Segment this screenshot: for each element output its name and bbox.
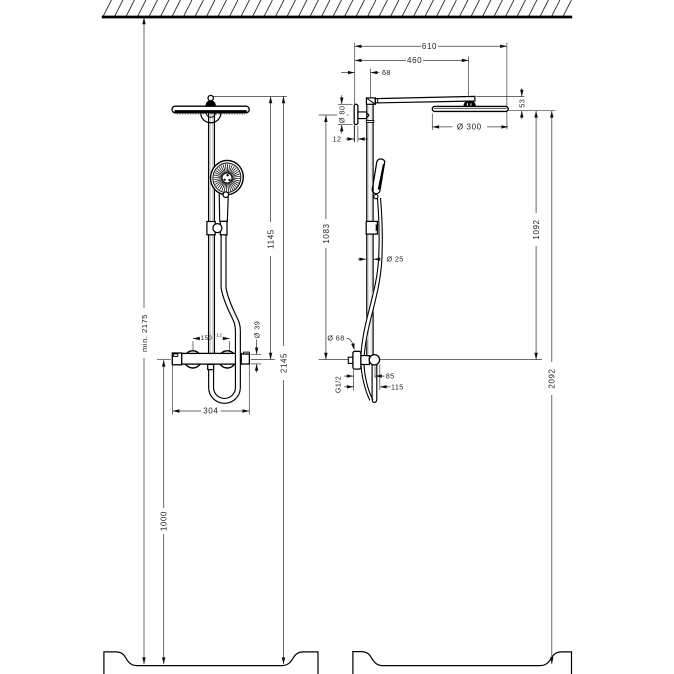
svg-text:12: 12 <box>333 135 342 144</box>
svg-text:53: 53 <box>518 99 527 108</box>
svg-text:2092: 2092 <box>548 368 557 388</box>
svg-text:68: 68 <box>382 68 391 77</box>
svg-text:610: 610 <box>422 42 437 51</box>
svg-text:Ø 80: Ø 80 <box>338 106 347 124</box>
svg-text:2145: 2145 <box>279 353 288 373</box>
svg-text:Ø 300: Ø 300 <box>457 122 482 131</box>
svg-text:304: 304 <box>203 406 218 415</box>
svg-text:460: 460 <box>407 56 422 65</box>
svg-text:1092: 1092 <box>532 219 541 239</box>
svg-text:Ø 68: Ø 68 <box>327 334 344 343</box>
svg-text:1145: 1145 <box>267 229 276 249</box>
svg-text:115: 115 <box>391 382 404 391</box>
svg-text:G1/2: G1/2 <box>333 376 342 393</box>
svg-text:85: 85 <box>386 372 395 381</box>
svg-text:+12: +12 <box>213 333 222 339</box>
svg-text:150: 150 <box>201 335 213 342</box>
svg-text:1083: 1083 <box>322 223 331 243</box>
svg-text:1000: 1000 <box>159 511 168 531</box>
svg-text:Ø 25: Ø 25 <box>387 255 404 264</box>
svg-text:Ø 39: Ø 39 <box>253 321 262 339</box>
svg-text:min. 2175: min. 2175 <box>140 314 149 352</box>
